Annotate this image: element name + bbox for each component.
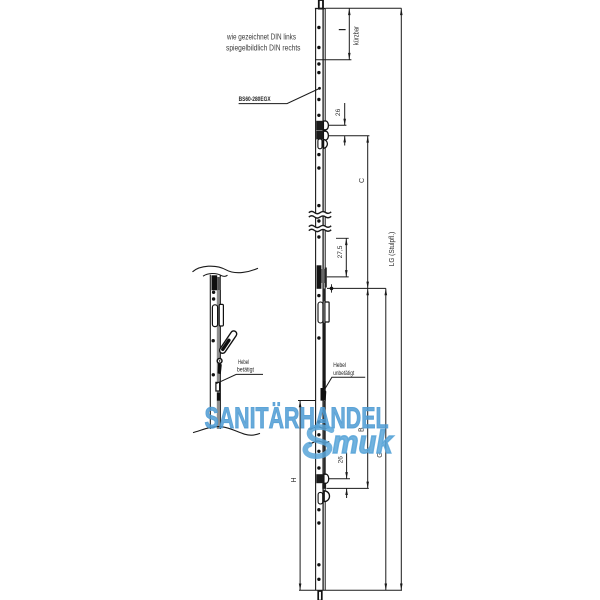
svg-text:BS60-280EGX: BS60-280EGX [239, 96, 271, 103]
svg-text:betätigt: betätigt [237, 366, 254, 373]
svg-text:C: C [359, 178, 366, 183]
svg-text:H: H [291, 477, 298, 482]
svg-text:spiegelbildlich DIN rechts: spiegelbildlich DIN rechts [226, 43, 301, 53]
svg-text:unbetätigt: unbetätigt [333, 370, 354, 377]
svg-text:wie gezeichnet DIN links: wie gezeichnet DIN links [226, 31, 296, 41]
svg-text:Hebel: Hebel [333, 362, 346, 369]
svg-text:kürzbar: kürzbar [351, 26, 360, 45]
svg-text:LG (Stulpfl.): LG (Stulpfl.) [387, 232, 396, 267]
svg-text:muk: muk [333, 424, 395, 460]
svg-text:26: 26 [335, 108, 342, 116]
svg-text:27,5: 27,5 [337, 245, 344, 258]
svg-text:Hebel: Hebel [238, 359, 249, 366]
